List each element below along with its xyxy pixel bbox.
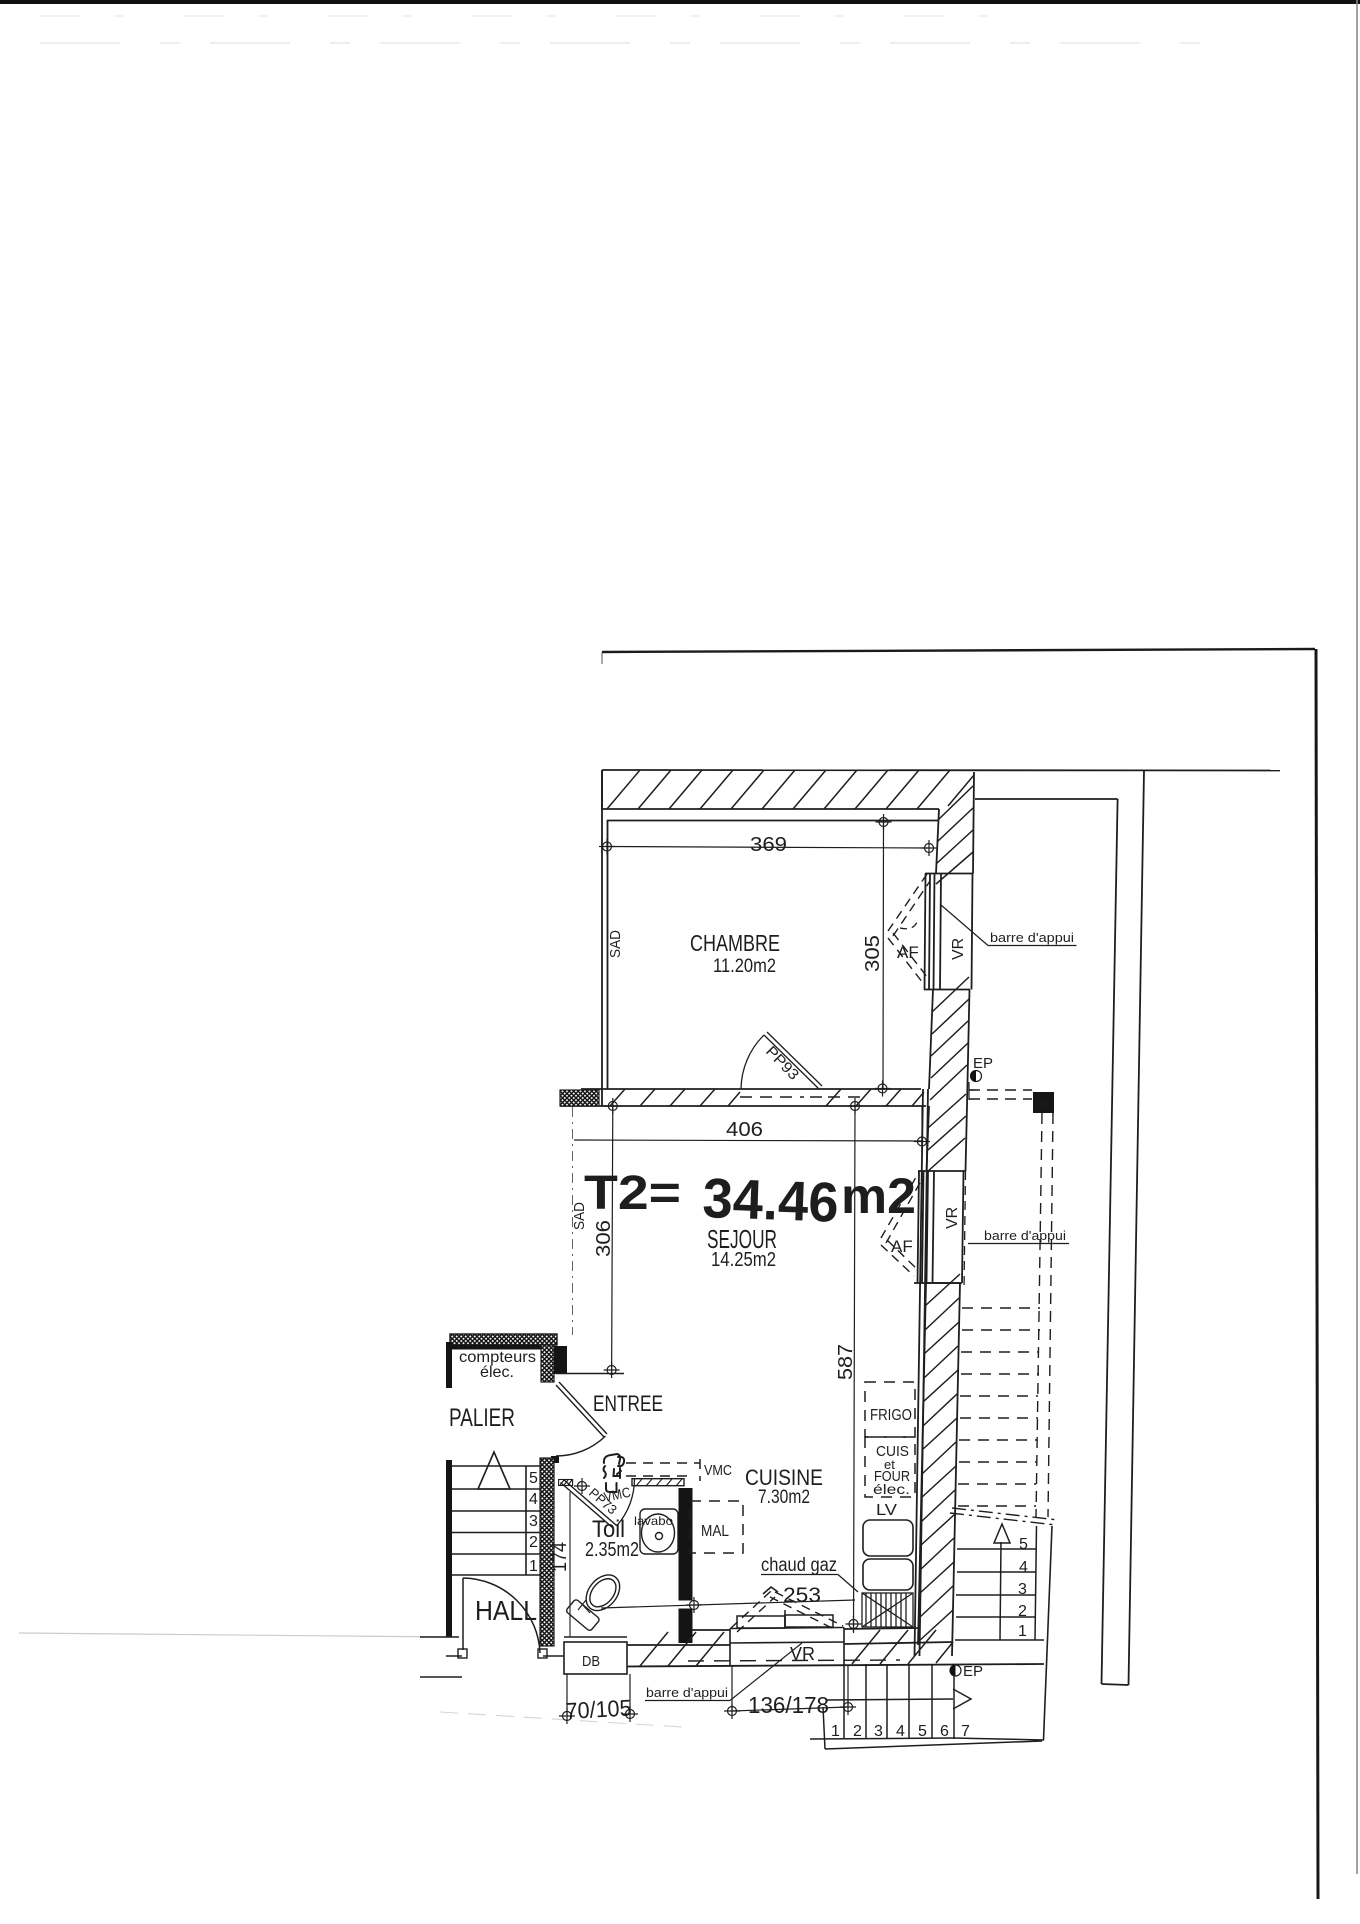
svg-text:barre d'appui: barre d'appui <box>984 1228 1066 1243</box>
svg-text:1: 1 <box>831 1723 840 1740</box>
svg-text:chaud gaz: chaud gaz <box>761 1555 837 1576</box>
svg-text:1: 1 <box>529 1558 538 1575</box>
svg-text:2: 2 <box>853 1723 862 1740</box>
svg-text:70/105: 70/105 <box>565 1695 632 1724</box>
svg-text:253: 253 <box>783 1584 821 1607</box>
svg-text:406: 406 <box>726 1119 763 1141</box>
svg-text:42: 42 <box>1037 1100 1049 1111</box>
svg-text:7: 7 <box>961 1723 970 1740</box>
svg-text:DB: DB <box>582 1653 600 1670</box>
svg-text:4: 4 <box>896 1723 905 1740</box>
svg-text:élec.: élec. <box>873 1481 910 1497</box>
svg-text:VR: VR <box>944 1207 961 1229</box>
svg-text:3: 3 <box>1018 1581 1027 1598</box>
svg-text:14.25m2: 14.25m2 <box>711 1249 776 1271</box>
svg-text:AF: AF <box>897 943 919 962</box>
svg-text:2: 2 <box>1018 1603 1027 1620</box>
svg-text:369: 369 <box>750 834 787 856</box>
svg-text:EP: EP <box>963 1663 983 1680</box>
svg-text:136/178: 136/178 <box>748 1692 829 1718</box>
svg-text:CHAMBRE: CHAMBRE <box>690 930 780 956</box>
svg-text:2.35m2: 2.35m2 <box>585 1539 639 1561</box>
svg-text:barre d'appui: barre d'appui <box>990 930 1074 945</box>
svg-text:AF: AF <box>891 1237 913 1256</box>
svg-text:EP: EP <box>973 1055 993 1072</box>
svg-text:lavabo: lavabo <box>634 1514 673 1528</box>
svg-text:T2=: T2= <box>584 1167 681 1220</box>
svg-text:VMC: VMC <box>704 1462 732 1479</box>
svg-text:4: 4 <box>1019 1559 1028 1576</box>
svg-text:LV: LV <box>876 1502 897 1519</box>
svg-text:2: 2 <box>529 1534 538 1551</box>
svg-text:SAD: SAD <box>607 930 624 958</box>
svg-text:VR: VR <box>950 938 967 960</box>
svg-text:7.30m2: 7.30m2 <box>758 1487 810 1508</box>
svg-text:1: 1 <box>1018 1623 1027 1640</box>
svg-text:5: 5 <box>529 1470 538 1487</box>
svg-text:HALL: HALL <box>475 1595 537 1626</box>
svg-text:FRIGO: FRIGO <box>870 1407 912 1424</box>
svg-text:ENTREE: ENTREE <box>593 1391 663 1416</box>
svg-text:5: 5 <box>1019 1536 1028 1553</box>
svg-text:306: 306 <box>593 1220 615 1257</box>
svg-text:305: 305 <box>862 935 884 972</box>
svg-text:174: 174 <box>550 1542 571 1572</box>
svg-text:5: 5 <box>918 1723 927 1740</box>
svg-text:barre d'appui: barre d'appui <box>646 1685 728 1700</box>
svg-text:6: 6 <box>940 1723 949 1740</box>
svg-text:PALIER: PALIER <box>449 1404 515 1432</box>
svg-text:3: 3 <box>874 1723 883 1740</box>
svg-text:MAL: MAL <box>701 1523 729 1540</box>
svg-text:élec.: élec. <box>480 1364 514 1381</box>
svg-text:4: 4 <box>529 1491 538 1508</box>
svg-text:3: 3 <box>529 1513 538 1530</box>
svg-text:587: 587 <box>835 1344 857 1380</box>
svg-text:11.20m2: 11.20m2 <box>713 956 776 977</box>
